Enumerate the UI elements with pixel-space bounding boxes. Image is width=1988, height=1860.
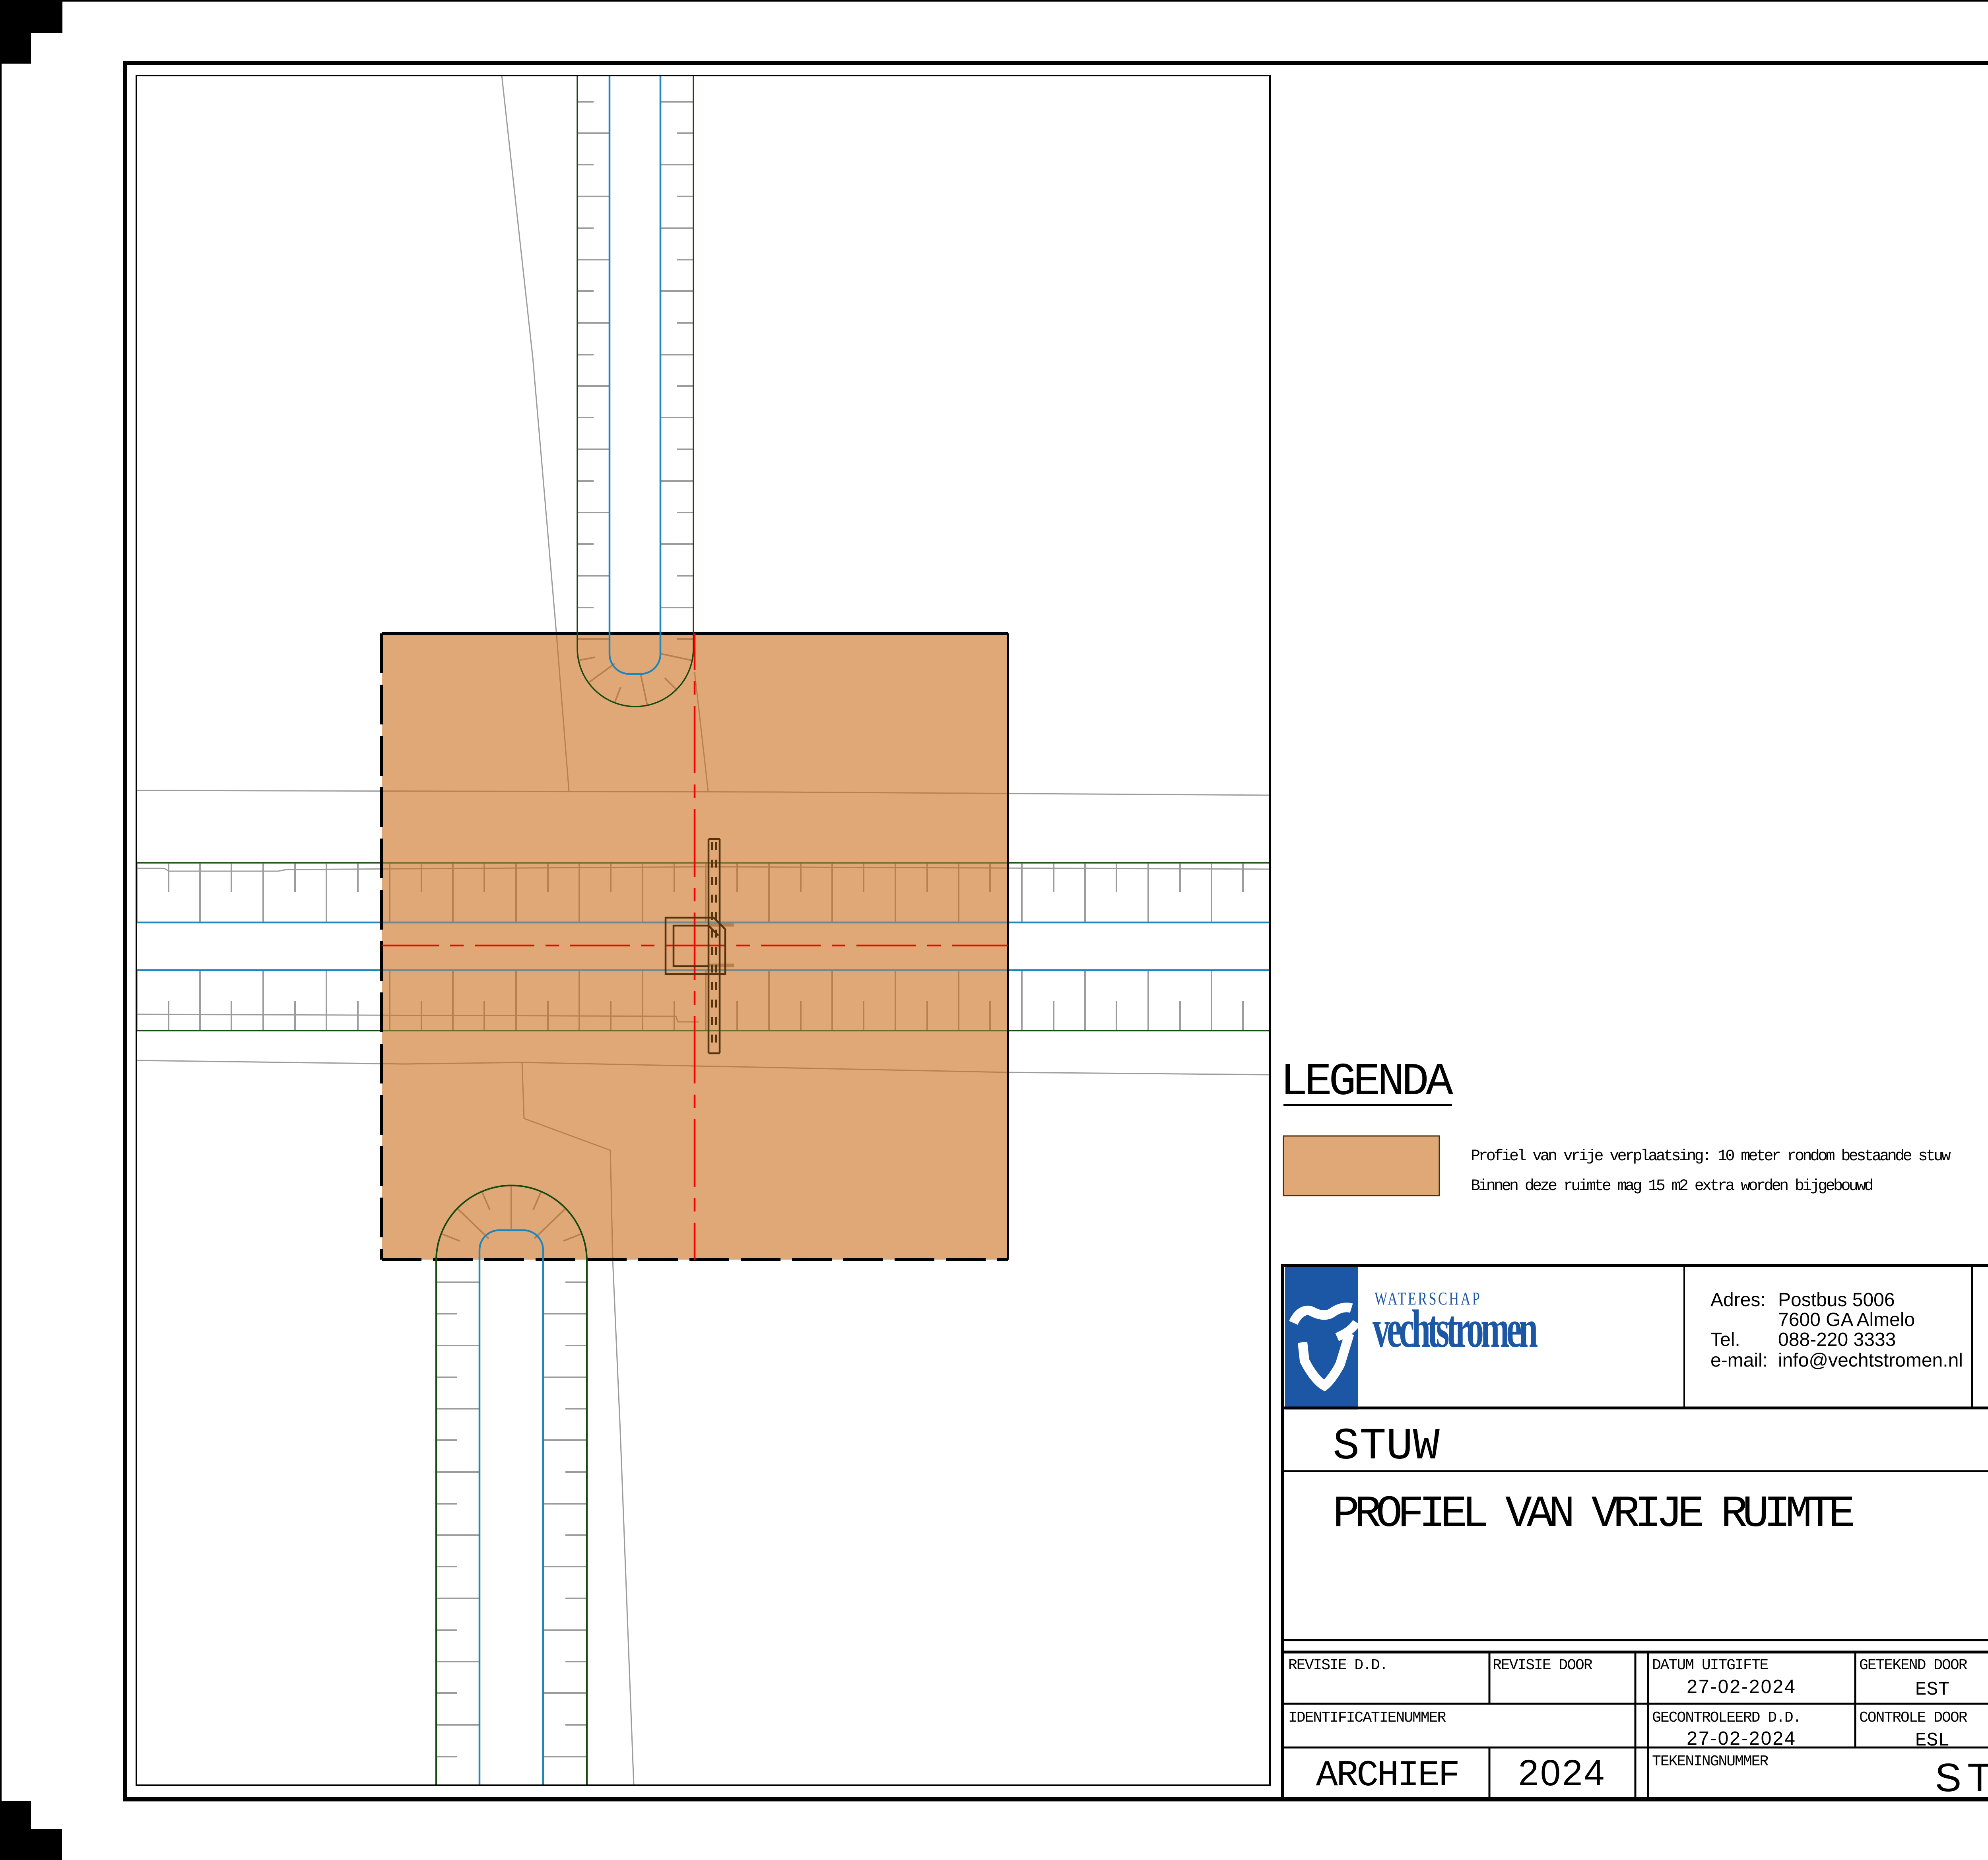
svg-text:Tel.: Tel. <box>1710 1329 1740 1350</box>
svg-text:STUW: STUW <box>1333 1421 1440 1472</box>
svg-text:27-02-2024: 27-02-2024 <box>1687 1728 1796 1749</box>
svg-text:Postbus 5006: Postbus 5006 <box>1778 1289 1895 1311</box>
svg-text:CONTROLE DOOR: CONTROLE DOOR <box>1859 1709 1967 1726</box>
svg-text:EST: EST <box>1915 1679 1949 1701</box>
svg-text:IDENTIFICATIENUMMER: IDENTIFICATIENUMMER <box>1288 1709 1446 1726</box>
svg-text:GECONTROLEERD D.D.: GECONTROLEERD D.D. <box>1652 1709 1801 1726</box>
svg-text:Binnen deze ruimte mag 15 m2 e: Binnen deze ruimte mag 15 m2 extra worde… <box>1471 1177 1873 1195</box>
svg-text:TEKENINGNUMMER: TEKENINGNUMMER <box>1652 1753 1768 1770</box>
svg-text:e-mail:: e-mail: <box>1710 1350 1768 1371</box>
svg-text:DATUM UITGIFTE: DATUM UITGIFTE <box>1652 1657 1768 1674</box>
svg-text:PROFIEL VAN VRIJE RUIMTE: PROFIEL VAN VRIJE RUIMTE <box>1333 1489 1853 1540</box>
svg-text:Adres:: Adres: <box>1710 1289 1766 1311</box>
svg-text:ARCHIEF: ARCHIEF <box>1316 1755 1458 1796</box>
svg-text:088-220 3333: 088-220 3333 <box>1778 1329 1896 1350</box>
svg-text:REVISIE D.D.: REVISIE D.D. <box>1288 1657 1388 1674</box>
svg-text:7600 GA Almelo: 7600 GA Almelo <box>1778 1309 1915 1330</box>
svg-text:LEGENDA: LEGENDA <box>1280 1056 1453 1108</box>
svg-text:ESL: ESL <box>1915 1730 1949 1751</box>
svg-text:vechtstromen: vechtstromen <box>1373 1299 1538 1359</box>
svg-text:27-02-2024: 27-02-2024 <box>1687 1676 1796 1697</box>
svg-text:GETEKEND DOOR: GETEKEND DOOR <box>1859 1657 1967 1674</box>
svg-text:ST00000-O-24-C-001: ST00000-O-24-C-001 <box>1935 1755 1988 1800</box>
svg-text:2024: 2024 <box>1518 1753 1606 1793</box>
svg-text:REVISIE DOOR: REVISIE DOOR <box>1493 1657 1592 1674</box>
svg-text:info@vechtstromen.nl: info@vechtstromen.nl <box>1778 1350 1963 1371</box>
svg-text:Profiel van vrije verplaatsing: Profiel van vrije verplaatsing: 10 meter… <box>1471 1147 1951 1165</box>
